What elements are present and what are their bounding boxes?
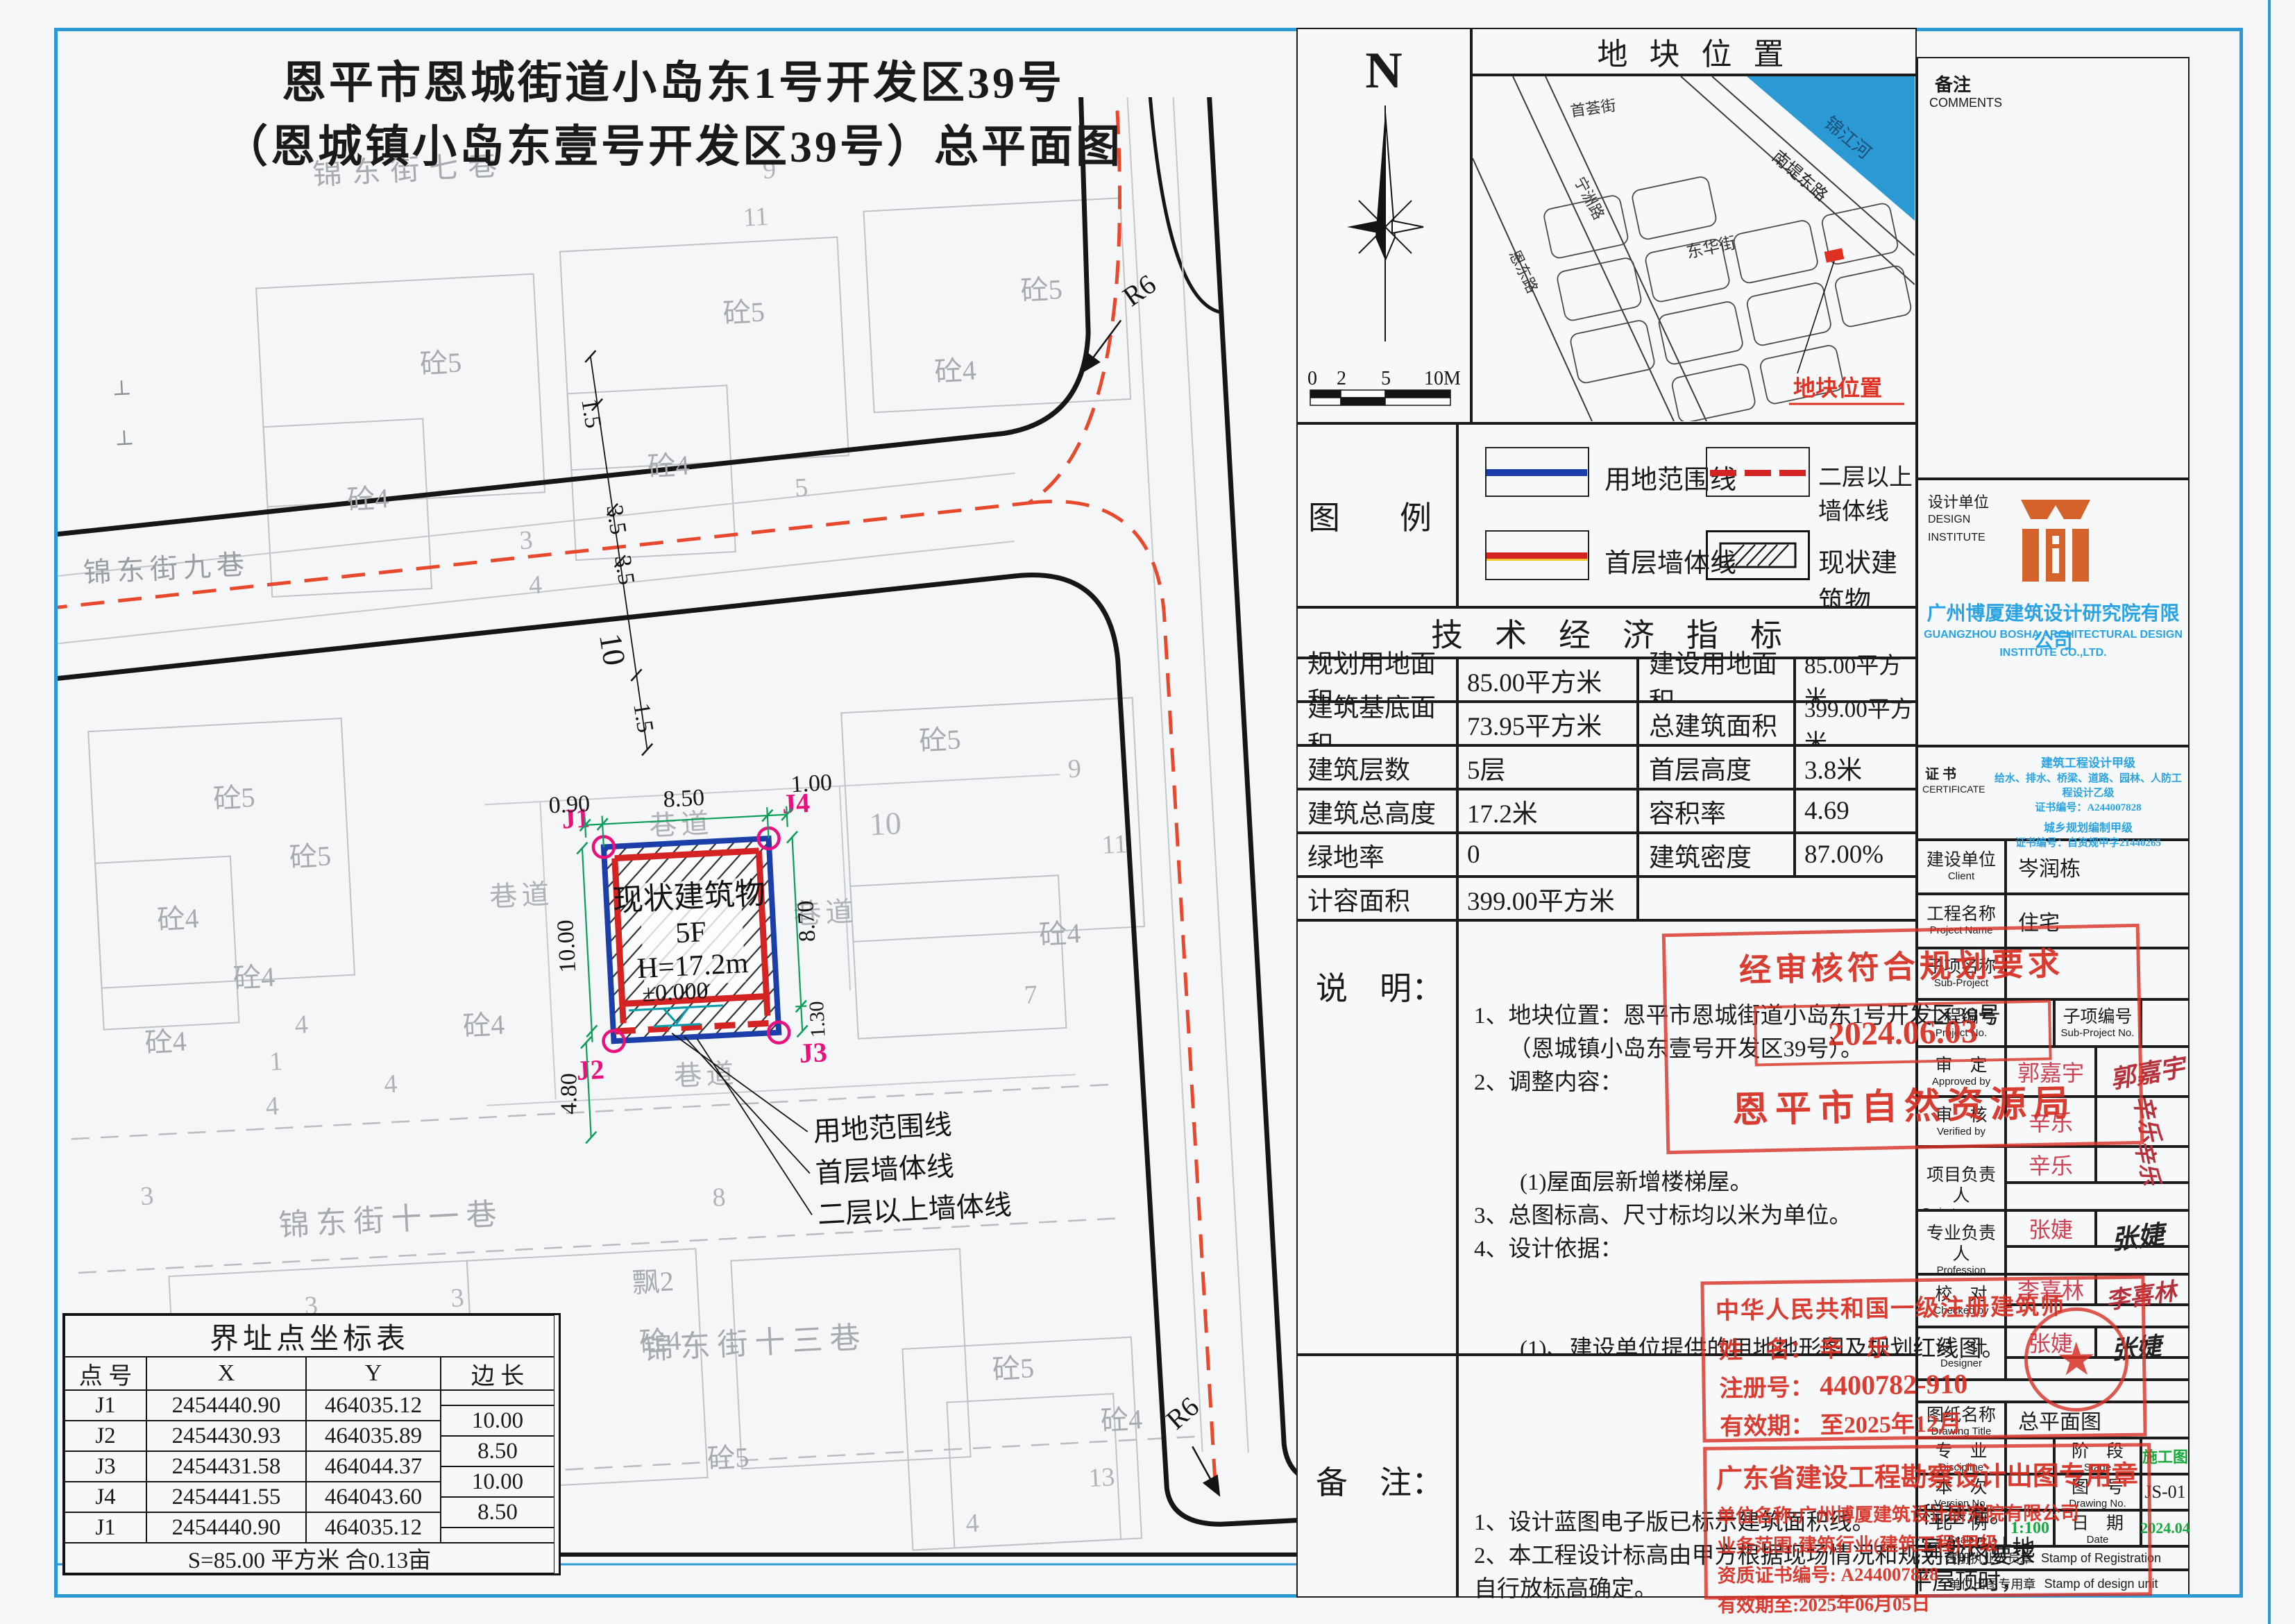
- architect-name-label: 姓 名：: [1719, 1337, 1814, 1364]
- coord-x: 2454431.58: [146, 1451, 306, 1482]
- legend-text: 二层以上墙体线: [1818, 458, 1915, 526]
- point-id: J1: [65, 1512, 146, 1543]
- gd-stamp-line: 有效期至:2025年06月05日: [1718, 1587, 2149, 1617]
- coord-x: 2454430.93: [146, 1421, 306, 1451]
- indicator-label: 首层高度: [1638, 745, 1795, 789]
- indicator-label: 绿地率: [1296, 833, 1457, 877]
- remarks-label-cell: 备 注：: [1296, 1355, 1457, 1598]
- indicator-value: 85.00平方米: [1457, 658, 1638, 702]
- location-map: 锦江河 首荟街: [1471, 75, 1917, 423]
- cert-line: 城乡规划编制甲级: [1990, 818, 2186, 835]
- indicator-value: 399.00平方米: [1795, 702, 1917, 745]
- gd-stamp-title: 广东省建设工程勘察设计出图专用章: [1707, 1453, 2147, 1496]
- indicator-value: 399.00平方米: [1457, 877, 1638, 920]
- map-road-label: 南堤东路: [1768, 147, 1831, 205]
- legend-swatch-first-wall: [1485, 530, 1589, 580]
- legend-swatch-existing: [1706, 530, 1810, 580]
- indicator-label: 建设用地面积: [1638, 658, 1795, 702]
- cert-line: 建筑工程设计甲级: [1990, 753, 2186, 770]
- cert-zh: 证 书: [1925, 763, 1956, 783]
- registered-architect-stamp: 中华人民共和国一级注册建筑师 姓 名： 辛 乐 注册号： 4400782-910…: [1700, 1276, 2146, 1443]
- map-road-label: 首荟街: [1569, 96, 1617, 120]
- edge-length: 8.50: [441, 1436, 554, 1466]
- location-map-title-text: 地 块 位 置: [1598, 29, 1791, 74]
- legend-label: 图 例: [1308, 493, 1446, 539]
- architect-name: 辛 乐: [1819, 1336, 1890, 1362]
- notes-label: 说 明：: [1316, 963, 1443, 1009]
- design-institute-cell: 设计单位 DESIGN INSTITUTE 广州博厦建筑设计研究院有限公司 GU…: [1917, 479, 2190, 746]
- drawing-sheet: 锦东街七巷 锦东街九巷 锦东街十一巷 锦东街十三巷 巷道 巷道 巷道 巷道 砼5…: [0, 0, 2295, 1624]
- coord-x: 2454440.90: [146, 1512, 306, 1543]
- svg-text:5: 5: [1381, 368, 1391, 389]
- architect-valid: 至2025年12月: [1820, 1411, 1962, 1439]
- location-map-title: 地 块 位 置: [1471, 28, 1917, 75]
- legend-swatch-upper-wall: [1706, 447, 1810, 497]
- design-unit-zh: 设计单位: [1928, 490, 1989, 512]
- col-header: Y: [306, 1357, 441, 1390]
- company-name-en1: GUANGZHOU BOSHA ARCHITECTURAL DESIGN: [1918, 629, 2188, 641]
- architect-reg-no: 4400782-910: [1820, 1368, 1968, 1401]
- gd-survey-design-stamp: 广东省建设工程勘察设计出图专用章 单位名称:广州博厦建筑设计研究院有限公司 业务…: [1703, 1443, 2152, 1600]
- coord-x: 2454441.55: [146, 1482, 306, 1512]
- cert-line: 给水、排水、桥梁、道路、园林、人防工程设计乙级: [1990, 770, 2186, 800]
- cert-line: 证书编号：自资规甲字21440265: [1990, 835, 2186, 849]
- col-header: 边 长: [441, 1357, 554, 1390]
- indicator-label: 建筑基底面积: [1296, 702, 1457, 745]
- legend-swatch-boundary: [1485, 447, 1589, 497]
- plot-marker-leader: [1797, 261, 1834, 373]
- svg-text:0: 0: [1307, 368, 1317, 389]
- design-unit-en1: DESIGN: [1928, 514, 1970, 526]
- coord-y: 464044.37: [306, 1451, 441, 1482]
- svg-text:10M: 10M: [1424, 368, 1461, 389]
- north-arrow-icon: [1337, 99, 1434, 348]
- coordinate-table-title: 界址点坐标表: [65, 1315, 554, 1357]
- indicator-label: 计容面积: [1296, 877, 1457, 920]
- legend-items-cell: 用地范围线 二层以上墙体线 首层墙体线 现状建筑物: [1457, 423, 1917, 607]
- architect-valid-label: 有效期：: [1720, 1413, 1815, 1440]
- point-id: J3: [65, 1451, 146, 1482]
- comments-zh: 备注: [1935, 71, 1971, 96]
- indicator-value: 87.00%: [1795, 833, 1917, 877]
- planning-stamp-line1: 经审核符合规划要求: [1666, 937, 2137, 992]
- indicator-value: 5层: [1457, 745, 1638, 789]
- gd-stamp-line: 业务范围:建筑行业(建筑工程)甲级: [1717, 1527, 2148, 1557]
- edge-length: 10.00: [441, 1405, 554, 1436]
- planning-approval-stamp: 经审核符合规划要求 2024.06.03 恩平市自然资源局: [1662, 924, 2144, 1154]
- scale-bar: 0 2 5 10M: [1307, 368, 1463, 412]
- cert-lines: 建筑工程设计甲级 给水、排水、桥梁、道路、园林、人防工程设计乙级 证书编号：A2…: [1990, 753, 2186, 849]
- indicator-label: 容积率: [1638, 789, 1795, 833]
- architect-reg-label: 注册号：: [1719, 1375, 1814, 1402]
- river-area: [1747, 76, 1915, 221]
- plot-location-label: 地块位置: [1793, 375, 1882, 400]
- point-id: J4: [65, 1482, 146, 1512]
- indicator-value: 0: [1457, 833, 1638, 877]
- edge-length: 10.00: [441, 1466, 554, 1497]
- col-header: X: [146, 1357, 306, 1390]
- col-header: 点 号: [65, 1357, 146, 1390]
- legend-text: 现状建筑物: [1818, 541, 1915, 618]
- comments-cell: 备注 COMMENTS: [1917, 57, 2190, 479]
- company-logo-icon: [2014, 496, 2097, 586]
- cert-en: CERTIFICATE: [1922, 784, 1985, 795]
- point-id: J2: [65, 1421, 146, 1451]
- planning-stamp-line2: 恩平市自然资源局: [1668, 1072, 2140, 1134]
- indicator-label: 建筑密度: [1638, 833, 1795, 877]
- point-id: J1: [65, 1390, 146, 1421]
- indicator-label: 总建筑面积: [1638, 702, 1795, 745]
- plot-marker: [1824, 248, 1845, 262]
- remarks-label: 备 注：: [1316, 1457, 1443, 1503]
- company-name-zh: 广州博厦建筑设计研究院有限公司: [1918, 598, 2188, 654]
- indicator-value: 3.8米: [1795, 745, 1917, 789]
- notes-label-cell: 说 明：: [1296, 920, 1457, 1355]
- coordinate-table: 界址点坐标表 点 号 X Y 边 长 J1 2454440.90 464035.…: [62, 1313, 561, 1575]
- north-cell: N 0 2 5 10M: [1296, 28, 1471, 423]
- indicator-value: 17.2米: [1457, 789, 1638, 833]
- svg-text:2: 2: [1337, 368, 1346, 389]
- coord-y: 464035.12: [306, 1512, 441, 1543]
- edge-spacer: [441, 1528, 554, 1543]
- indicator-label: 建筑层数: [1296, 745, 1457, 789]
- company-name-en2: INSTITUTE CO.,LTD.: [1918, 647, 2188, 659]
- legend-label-cell: 图 例: [1296, 423, 1457, 607]
- coord-x: 2454440.90: [146, 1390, 306, 1421]
- comments-en: COMMENTS: [1929, 96, 2002, 110]
- indicator-value: 73.95平方米: [1457, 702, 1638, 745]
- north-label: N: [1298, 42, 1470, 101]
- map-road-label: 东华街: [1685, 233, 1738, 262]
- certificate-cell: 证 书 CERTIFICATE 建筑工程设计甲级 给水、排水、桥梁、道路、园林、…: [1917, 746, 2190, 840]
- gd-stamp-line: 资质证书编号: A244007828: [1717, 1557, 2148, 1587]
- coordinate-table-footer: S=85.00 平方米 合0.13亩: [65, 1543, 554, 1573]
- indicator-label: 建筑总高度: [1296, 789, 1457, 833]
- indicator-empty: [1638, 877, 1917, 920]
- coord-y: 464043.60: [306, 1482, 441, 1512]
- edge-length: 8.50: [441, 1497, 554, 1528]
- coord-y: 464035.12: [306, 1390, 441, 1421]
- outer-border-line: [2268, 0, 2271, 1624]
- coord-y: 464035.89: [306, 1421, 441, 1451]
- planning-stamp-date: 2024.06.03: [1754, 1000, 2052, 1067]
- gd-stamp-line: 单位名称:广州博厦建筑设计研究院有限公司: [1717, 1497, 2148, 1528]
- cert-line: 证书编号：A244007828: [1990, 800, 2186, 814]
- map-road-label: 恩东路: [1506, 247, 1541, 296]
- design-unit-en2: INSTITUTE: [1928, 532, 1985, 544]
- edge-spacer: [441, 1390, 554, 1405]
- indicator-value: 4.69: [1795, 789, 1917, 833]
